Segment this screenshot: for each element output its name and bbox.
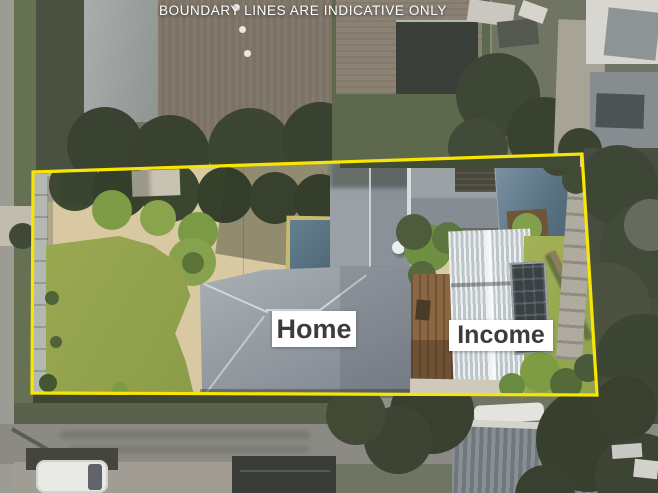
bush-bright xyxy=(499,373,525,399)
dark-roof-bottom xyxy=(232,456,336,493)
neighbor-roof-light xyxy=(84,0,162,122)
tree xyxy=(593,376,657,440)
white-shed-corner xyxy=(633,459,658,479)
footpath-left xyxy=(0,0,14,493)
bush xyxy=(50,336,62,348)
car-windshield xyxy=(88,464,102,490)
verge-bush xyxy=(9,223,36,249)
yard-junk xyxy=(497,18,539,48)
tree xyxy=(396,214,432,250)
tire-marks xyxy=(60,431,310,439)
bush-bright xyxy=(140,200,176,236)
grass-verge-bottom xyxy=(14,403,345,425)
gray-roof-right xyxy=(604,7,658,60)
boundary-disclaimer: BOUNDARY LINES ARE INDICATIVE ONLY xyxy=(159,3,447,18)
aerial-photo: Home Income BOUNDARY LINES ARE INDICATIV… xyxy=(0,0,658,493)
home-label: Home xyxy=(272,311,356,347)
roof-vent-dot xyxy=(244,50,251,57)
upper-roof-ridge xyxy=(369,166,371,270)
bush-bright xyxy=(92,190,132,230)
bush xyxy=(45,291,59,305)
spa-water xyxy=(290,220,332,270)
deck-item xyxy=(415,299,431,320)
white-shed-corner xyxy=(612,443,643,459)
income-label: Income xyxy=(449,320,553,351)
bush xyxy=(39,374,57,392)
dark-roof-ridge xyxy=(240,470,330,472)
roof-vent-dot xyxy=(239,26,246,33)
solar-panel-neighbor xyxy=(595,93,644,129)
fence-left xyxy=(33,172,48,393)
palm-centre xyxy=(182,252,204,274)
